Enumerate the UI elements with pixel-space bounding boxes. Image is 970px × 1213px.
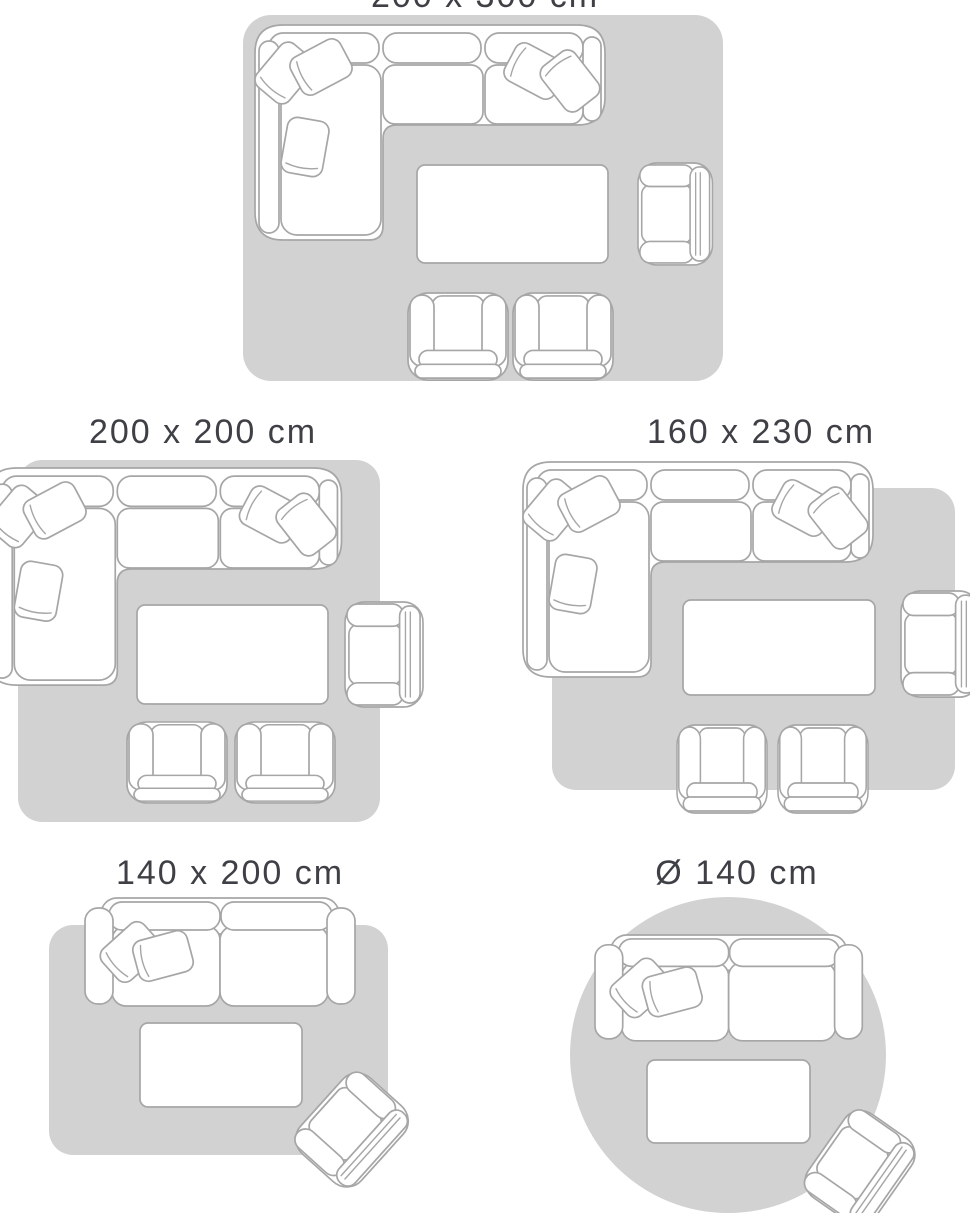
coffee-table-icon <box>683 600 875 695</box>
club-chair-icon <box>235 722 335 803</box>
club-chair-icon <box>677 725 767 813</box>
size-label: 200 x 200 cm <box>3 412 403 452</box>
club-chair-icon <box>408 293 508 380</box>
scene-rug-160x230 <box>515 455 970 830</box>
armchair-icon <box>638 163 712 265</box>
club-chair-icon <box>778 725 868 813</box>
scene-rug-140x200 <box>30 880 450 1213</box>
coffee-table-icon <box>417 165 608 263</box>
coffee-table-icon <box>647 1060 810 1143</box>
coffee-table-icon <box>137 605 328 704</box>
club-chair-icon <box>513 293 613 380</box>
coffee-table-icon <box>140 1023 302 1107</box>
scene-rug-200x200 <box>0 455 425 830</box>
size-label: 160 x 230 cm <box>561 412 961 452</box>
armchair-icon <box>345 602 423 707</box>
armchair-icon <box>901 591 970 697</box>
club-chair-icon <box>127 722 227 803</box>
sofa-icon <box>85 898 355 1006</box>
scene-rug-round-140 <box>540 880 970 1213</box>
scene-rug-200x300 <box>230 10 740 382</box>
rug-size-guide: { "page": { "title": "Rug size guide", "… <box>0 0 970 1213</box>
sofa-icon <box>595 935 862 1041</box>
